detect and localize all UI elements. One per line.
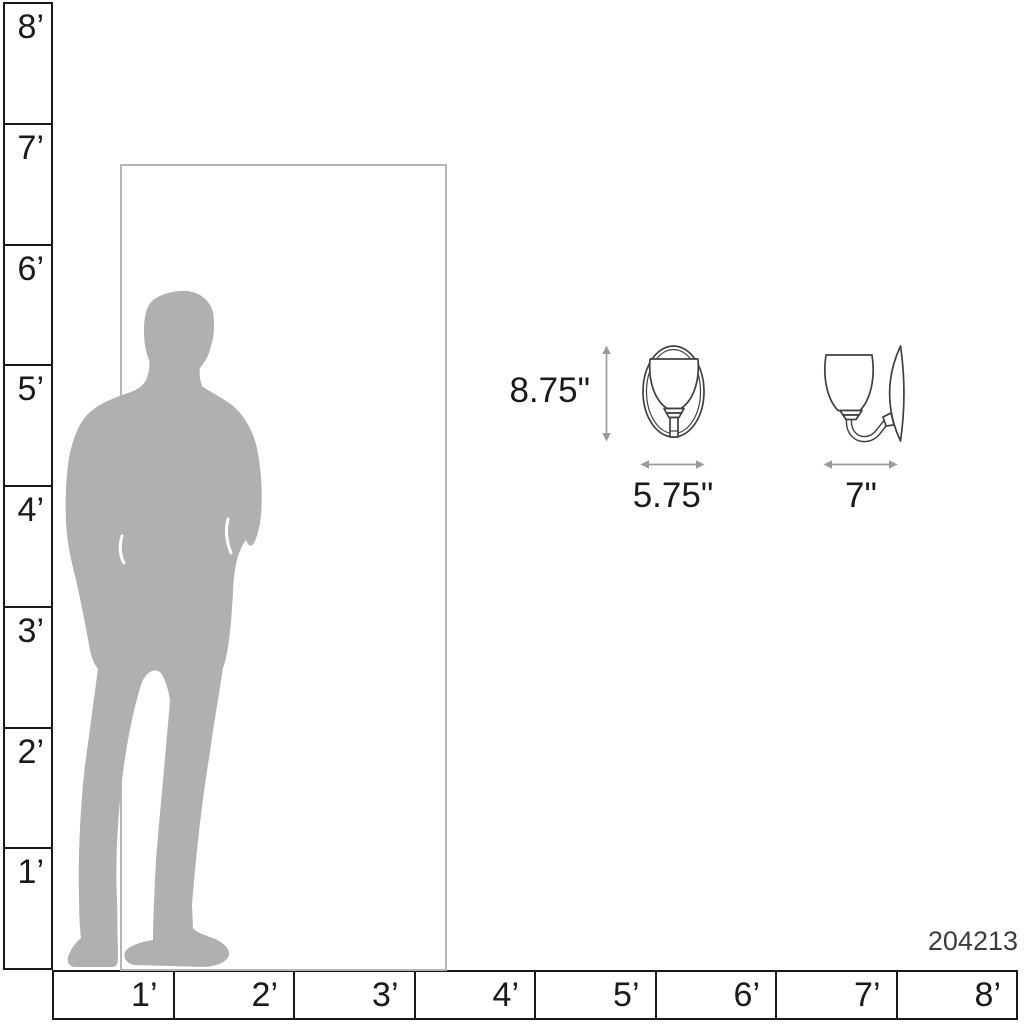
side-shade-neck	[843, 415, 859, 420]
glass-shade-front	[650, 359, 699, 409]
width-dimension-arrow	[641, 460, 705, 468]
glass-shade-side	[825, 355, 873, 411]
stem	[670, 418, 678, 438]
standing-man-silhouette	[66, 291, 262, 967]
product-number: 204213	[858, 928, 1018, 955]
sconce-front-view	[643, 346, 704, 437]
wall-backplate	[890, 346, 904, 441]
diagram-canvas: 8’ 7’ 6’ 5’ 4’ 3’ 2’ 1’ 1’ 2’ 3’ 4’ 5’ 6…	[0, 0, 1024, 1024]
depth-dimension-arrow	[824, 460, 898, 468]
depth-dimension-label: 7"	[786, 477, 936, 516]
width-dimension-label: 5.75"	[598, 477, 748, 516]
sconce-side-view	[825, 346, 904, 441]
height-dimension-arrow	[602, 346, 610, 442]
height-dimension-label: 8.75"	[440, 372, 590, 411]
